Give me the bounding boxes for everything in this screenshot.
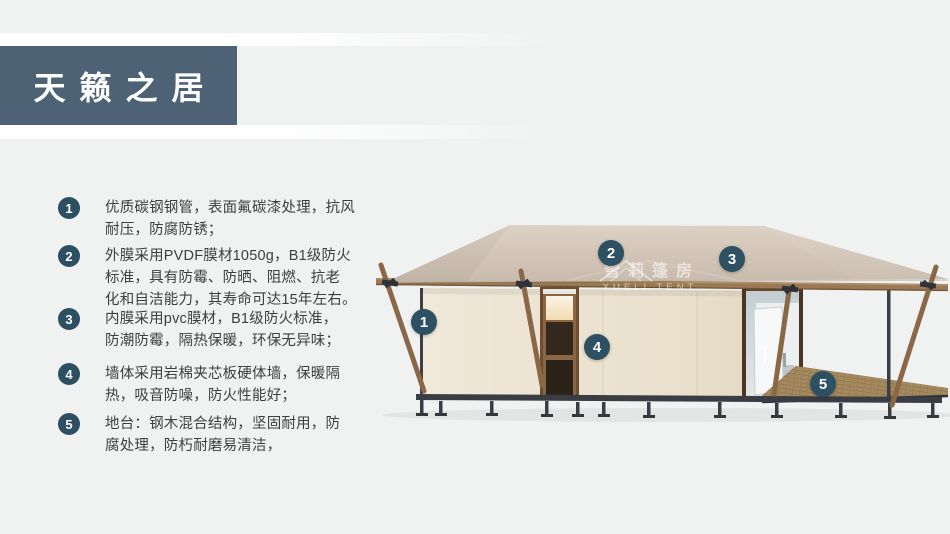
marker-5: 5 [810, 371, 836, 397]
marker-4: 4 [584, 334, 610, 360]
feature-1-text: 优质碳钢钢管，表面氟碳漆处理，抗风 耐压，防腐防锈； [105, 197, 373, 241]
feature-item-1: 1 优质碳钢钢管，表面氟碳漆处理，抗风 耐压，防腐防锈； [58, 197, 374, 241]
feature-item-4: 4 墙体采用岩棉夹芯板硬体墙，保暖隔 热，吸音防噪，防火性能好； [58, 363, 374, 407]
tent-render: 雪莉篷房 XUELI TENT 1 2 3 4 5 [370, 205, 950, 440]
feature-item-3: 3 内膜采用pvc膜材，B1级防火标准， 防潮防霉，隔热保暖，环保无异味； [58, 308, 374, 352]
right-metal-post [887, 284, 891, 402]
marker-3: 3 [719, 246, 745, 272]
feature-4-text: 墙体采用岩棉夹芯板硬体墙，保暖隔 热，吸音防噪，防火性能好； [105, 363, 373, 407]
feature-5-badge: 5 [58, 413, 80, 435]
tent-roof [384, 225, 948, 283]
accent-stripe-top [0, 33, 560, 46]
feature-4-badge: 4 [58, 363, 80, 385]
tent-door [540, 287, 579, 400]
feature-1-badge: 1 [58, 197, 80, 219]
feature-2-text: 外膜采用PVDF膜材1050g，B1级防火 标准，具有防霉、防晒、阻燃、抗老 化… [105, 245, 373, 311]
slide: 天籁之居 1 优质碳钢钢管，表面氟碳漆处理，抗风 耐压，防腐防锈； 2 外膜采用… [0, 0, 950, 534]
feature-2-badge: 2 [58, 245, 80, 267]
accent-stripe-bottom [0, 125, 560, 139]
feature-item-2: 2 外膜采用PVDF膜材1050g，B1级防火 标准，具有防霉、防晒、阻燃、抗老… [58, 245, 374, 311]
tent-illustration [370, 205, 950, 440]
feature-3-text: 内膜采用pvc膜材，B1级防火标准， 防潮防霉，隔热保暖，环保无异味； [105, 308, 373, 352]
marker-1: 1 [411, 309, 437, 335]
feature-5-text: 地台：钢木混合结构，坚固耐用，防 腐处理，防朽耐磨易清洁， [105, 413, 373, 457]
title-box: 天籁之居 [0, 46, 237, 125]
feature-item-5: 5 地台：钢木混合结构，坚固耐用，防 腐处理，防朽耐磨易清洁， [58, 413, 374, 457]
ground-shadow [382, 408, 950, 422]
marker-2: 2 [598, 240, 624, 266]
page-title: 天籁之居 [19, 63, 217, 109]
feature-3-badge: 3 [58, 308, 80, 330]
